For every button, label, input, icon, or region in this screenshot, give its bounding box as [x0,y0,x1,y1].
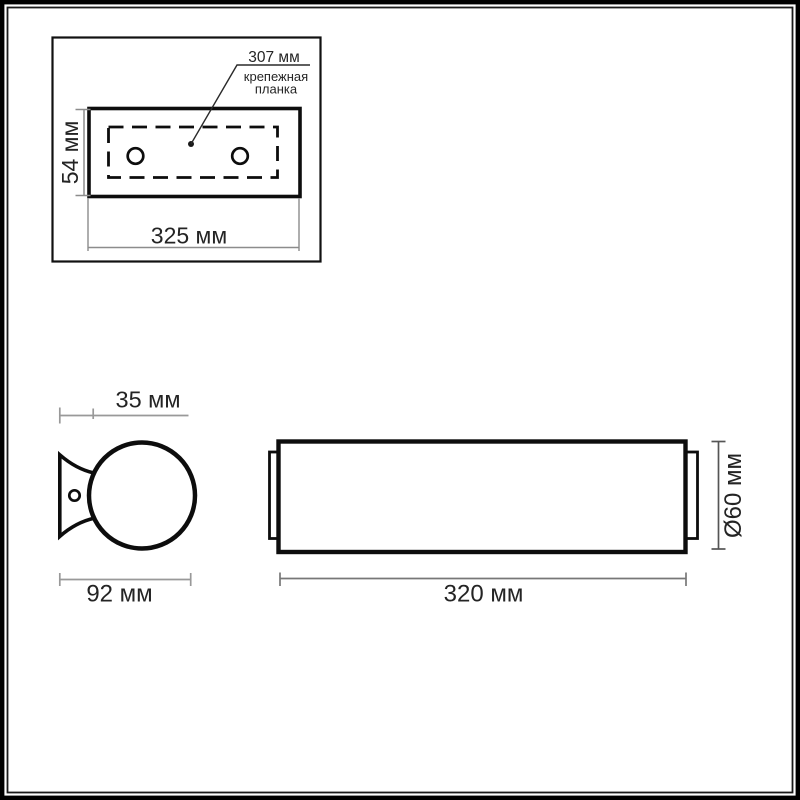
lamp-side-view: 35 мм 92 мм [59,387,195,608]
lamp-front-view: Ø60 мм 320 мм [270,442,748,608]
plate-width-label: 325 мм [151,223,227,249]
plate-screw-hole-right [232,148,248,164]
lamp-body-outline [279,442,686,553]
lamp-dimension-drawing: 307 мм крепежная планка 54 мм 325 мм [0,0,800,800]
plate-height-label: 54 мм [57,121,83,185]
bracket-depth-label: 35 мм [116,387,181,413]
bracket-screw-hole [69,490,79,500]
mounting-plate-outline [89,109,300,197]
mounting-plate-detail-box: 307 мм крепежная планка 54 мм 325 мм [53,38,321,262]
plate-name-line2: планка [255,82,298,97]
diameter-label: Ø60 мм [720,453,747,538]
lamp-tube-section [89,443,195,549]
plate-screw-hole-left [128,148,144,164]
length-label: 320 мм [444,581,524,608]
overall-depth-label: 92 мм [86,581,152,608]
technical-drawing-page: 307 мм крепежная планка 54 мм 325 мм [0,0,800,800]
plate-span-label: 307 мм [248,49,299,66]
